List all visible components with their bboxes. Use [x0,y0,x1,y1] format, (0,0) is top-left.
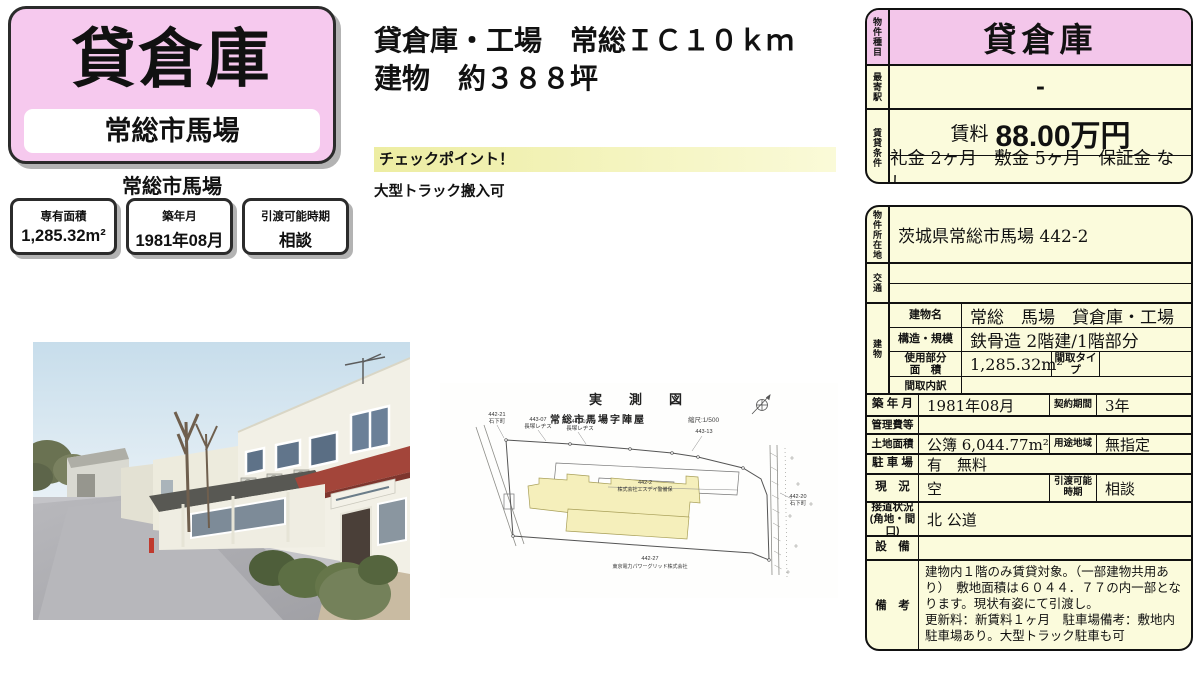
built-value: 1981年08月 [919,395,1050,415]
row-building: 建物 建物名 常総 馬場 貸倉庫・工場 構造・規模 鉄骨造 2階建/1階部分 使… [867,304,1191,395]
hydrant [149,538,154,553]
row-label-cell: 建物 [867,304,890,393]
building-name-value: 常総 馬場 貸倉庫・工場 [962,304,1191,327]
map-area-name: 常総市馬場字陣屋 [550,413,646,426]
cell-label: 構造・規模 [890,328,962,351]
access-line2 [890,284,1191,303]
parking-value: 有 無料 [919,455,1191,473]
address-value: 茨城県常総市馬場 442-2 [890,207,1191,262]
row-label-cell: 物件所在地 [867,207,890,262]
cell-label: 契約期間 [1050,395,1097,415]
parcel-label: 長塚レヂス [524,422,552,430]
info-chip-value: 相談 [245,227,346,251]
equipment-value [919,537,1191,559]
row-label: 建物 [871,339,884,359]
row-equipment: 設 備 [867,537,1191,561]
parcel-label: 443-07 [529,417,546,423]
parcel-label: 443-13 [695,429,712,435]
summary-row-station: 最寄駅 - [867,66,1191,110]
property-title-box: 貸倉庫 常総市馬場 [8,6,336,164]
parcel-label: 442-20 [789,494,806,500]
row-label: 土地面積 [867,435,919,453]
row-label: 管理費等 [867,417,919,433]
access-cells [890,264,1191,302]
detail-table: 物件所在地 茨城県常総市馬場 442-2 交通 建物 建物名 常総 馬場 貸倉庫… [865,205,1193,651]
station-value: - [890,66,1191,108]
survey-map-drawing: 実 測 図 常総市馬場字陣屋 縮尺:1/500 [440,383,838,598]
summary-row-terms: 賃貸条件 賃料 88.00万円 礼金 2ヶ月 敷金 5ヶ月 保証金 なし [867,110,1191,184]
row-label: 設 備 [867,537,919,559]
parcel-label: 東京電力パワーグリッド株式会社 [612,563,687,570]
row-label: 接道状況 (角地・間口) [867,503,919,535]
access-line1 [890,264,1191,284]
cell-label: 建物名 [890,304,962,327]
rent-label: 賃料 [950,119,988,146]
row-label: 物件所在地 [871,210,884,260]
row-remarks: 備 考 建物内１階のみ賃貸対象。（一部建物共用あり） 敷地面積は６０４４．７７の… [867,561,1191,651]
first-floor-window-right [378,498,406,545]
map-scale: 縮尺:1/500 [688,415,719,424]
cell-label: 使用部分 面 積 [890,352,962,376]
row-road: 接道状況 (角地・間口) 北 公道 [867,503,1191,537]
handover-value: 相談 [1097,475,1191,501]
cell-label: 引渡可能 時期 [1050,475,1097,501]
checkpoint-header: チェックポイント！ [374,147,836,172]
summary-table: 物件種目 貸倉庫 最寄駅 - 賃貸条件 賃料 88.00万円 礼金 2ヶ月 敷金… [865,8,1193,184]
parcel-label: 石下町 [489,418,506,425]
parcel-label: 443-10 [571,419,588,425]
info-chip-label: 築年月 [129,208,230,224]
layout-detail-value [962,377,1191,395]
headline-line2: 建物 約３８８坪 [374,60,864,98]
parcel-label: 石下町 [790,500,807,507]
info-chip-handover: 引渡可能時期 相談 [242,198,349,255]
summary-row-type: 物件種目 貸倉庫 [867,10,1191,66]
property-photo-drawing [33,342,410,620]
road-value: 北 公道 [919,503,1191,535]
land-value: 公簿 6,044.77m² [919,435,1050,453]
status-value: 空 [919,475,1050,501]
row-land: 土地面積 公簿 6,044.77m² 用途地域 無指定 [867,435,1191,455]
row-label: 最寄駅 [871,72,884,102]
row-address: 物件所在地 茨城県常総市馬場 442-2 [867,207,1191,264]
info-chip-built: 築年月 1981年08月 [126,198,233,255]
flyer-page: { "flyer": { "title": "貸倉庫", "title_loca… [0,0,1200,698]
layout-detail-row: 間取内訳 [890,377,1191,395]
annex-left [121,464,153,524]
deposit-row: 礼金 2ヶ月 敷金 5ヶ月 保証金 なし [890,156,1191,184]
row-parking: 駐 車 場 有 無料 [867,455,1191,475]
area-row: 使用部分 面 積 1,285.32m² 間取タイプ [890,352,1191,377]
property-type-value: 貸倉庫 [890,10,1191,64]
row-label: 物件種目 [871,17,884,57]
property-photo [33,342,410,620]
info-chip-area: 専有面積 1,285.32m² [10,198,117,255]
cell-label: 用途地域 [1050,435,1097,453]
cell-label: 間取タイプ [1052,352,1100,376]
row-built: 築 年 月 1981年08月 契約期間 3年 [867,395,1191,417]
parcel-label: 442-21 [488,412,505,418]
row-access: 交通 [867,264,1191,304]
zoning-value: 無指定 [1097,435,1191,453]
parcel-label: 442-27 [641,556,658,562]
remarks-value: 建物内１階のみ賃貸対象。（一部建物共用あり） 敷地面積は６０４４．７７の内一部と… [919,561,1191,651]
fees-value [919,417,1191,433]
location-caption: 常総市馬場 [8,170,336,199]
info-chip-label: 専有面積 [13,208,114,224]
headline-line1: 貸倉庫・工場 常総ＩＣ１０ｋｍ [374,22,864,60]
property-type-title: 貸倉庫 [11,9,333,109]
headline: 貸倉庫・工場 常総ＩＣ１０ｋｍ 建物 約３８８坪 [374,22,864,98]
parcel-label: 株式会社エスデイ警備保 [617,486,672,493]
building-cells: 建物名 常総 馬場 貸倉庫・工場 構造・規模 鉄骨造 2階建/1階部分 使用部分… [890,304,1191,393]
row-label-cell: 交通 [867,264,890,302]
row-label-cell: 物件種目 [867,10,890,64]
info-chip-value: 1,285.32m² [13,227,114,246]
row-label: 交通 [871,273,884,293]
row-fees: 管理費等 [867,417,1191,435]
row-label: 築 年 月 [867,395,919,415]
survey-map: 実 測 図 常総市馬場字陣屋 縮尺:1/500 [440,383,838,598]
row-label: 駐 車 場 [867,455,919,473]
property-location-banner: 常総市馬場 [24,109,320,153]
terms-cells: 賃料 88.00万円 礼金 2ヶ月 敷金 5ヶ月 保証金 なし [890,110,1191,184]
cell-label: 間取内訳 [890,377,962,395]
structure-value: 鉄骨造 2階建/1階部分 [962,328,1191,351]
row-label: 賃貸条件 [871,128,884,168]
building-name-row: 建物名 常総 馬場 貸倉庫・工場 [890,304,1191,328]
area-value: 1,285.32m² [962,352,1052,376]
info-chip-label: 引渡可能時期 [245,208,346,224]
row-status: 現 況 空 引渡可能 時期 相談 [867,475,1191,503]
map-title: 実 測 図 [589,392,689,407]
row-label-cell: 最寄駅 [867,66,890,108]
row-label: 備 考 [867,561,919,651]
row-label: 現 況 [867,475,919,501]
row-label-cell: 賃貸条件 [867,110,890,184]
structure-row: 構造・規模 鉄骨造 2階建/1階部分 [890,328,1191,352]
layout-type-value [1100,352,1191,376]
parcel-label: 長塚レヂス [566,424,594,432]
contract-value: 3年 [1097,395,1191,415]
info-chip-value: 1981年08月 [129,227,230,251]
checkpoint-body: 大型トラック搬入可 [374,180,505,201]
parcel-label: 442-2 [638,480,652,486]
